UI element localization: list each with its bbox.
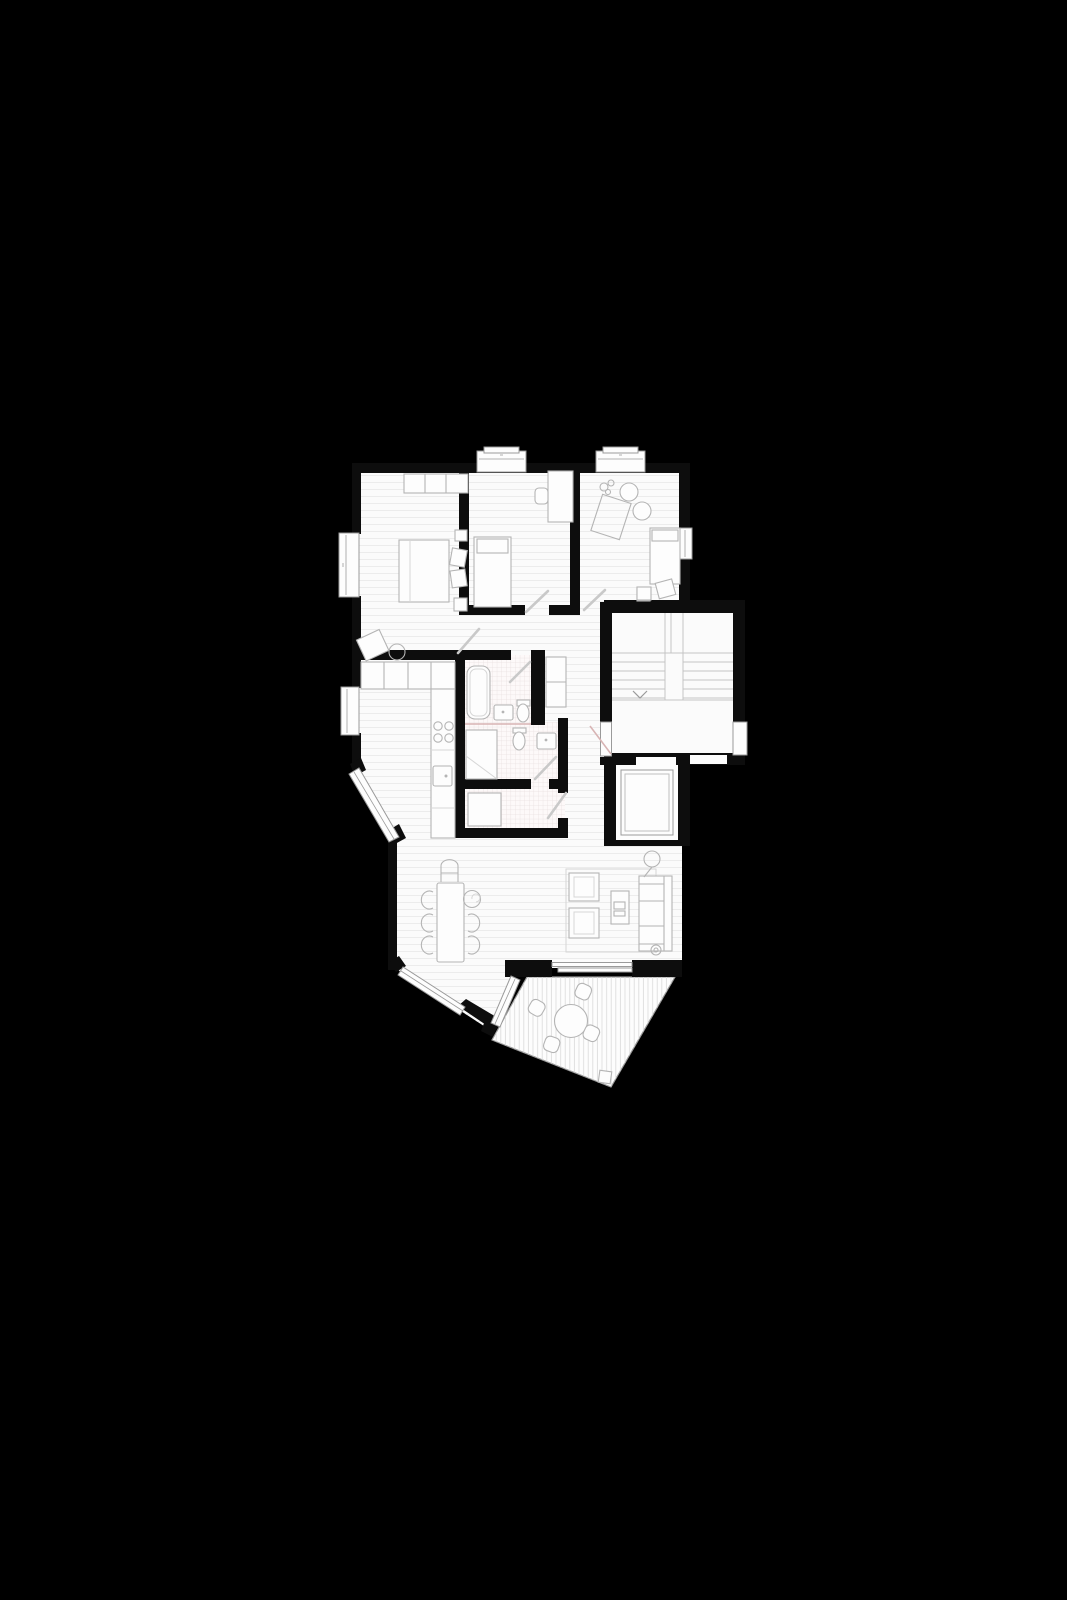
pillow xyxy=(477,539,508,553)
round-pouf xyxy=(633,502,651,520)
pillow xyxy=(652,530,678,541)
storage-room xyxy=(468,793,501,826)
double-bed xyxy=(399,540,449,602)
nightstand xyxy=(454,598,467,611)
storage-cabinet xyxy=(468,793,501,826)
wall-left-upper xyxy=(352,463,361,534)
counter xyxy=(431,689,455,838)
desk xyxy=(548,471,573,522)
wall-stair-left xyxy=(600,602,612,723)
pillow xyxy=(450,548,468,567)
terrace-corner-fixture xyxy=(598,1070,612,1084)
window-bedroom3-right xyxy=(679,528,692,559)
wall-living-bottom-a xyxy=(505,960,552,977)
wall-living-bottom-b xyxy=(632,960,682,977)
neighbour-door-tab xyxy=(733,722,747,755)
entrance-door-leaf xyxy=(601,722,612,756)
bay-window-bedroom2 xyxy=(477,447,526,472)
window-bedroom1-left xyxy=(339,533,359,597)
elevator xyxy=(616,765,678,840)
coffee-table xyxy=(611,891,629,924)
wall-kitchen-right xyxy=(455,650,465,838)
wardrobe xyxy=(404,474,468,493)
elevator-opening xyxy=(636,757,676,766)
terrace-table xyxy=(555,1005,588,1038)
round-pouf xyxy=(620,483,638,501)
shower xyxy=(466,730,497,779)
bedroom3-lower-objects xyxy=(637,587,651,600)
wall-bath2-bottom xyxy=(455,779,531,789)
floor-plan-canvas xyxy=(0,0,1067,1600)
wall-bath2-right xyxy=(558,718,568,786)
toilet xyxy=(513,728,526,750)
sofa xyxy=(639,876,672,951)
nightstand xyxy=(455,530,467,541)
desk-chair xyxy=(535,488,548,504)
dining-table xyxy=(437,883,464,962)
terrace xyxy=(492,977,675,1087)
floor-plan xyxy=(0,0,1067,1600)
wall-stair-top xyxy=(604,600,745,613)
wall-living-left xyxy=(388,833,397,970)
wall-right-upper xyxy=(679,463,690,528)
bay-window-bedroom3 xyxy=(596,447,645,472)
window-kitchen-left xyxy=(341,687,359,735)
wall-storage-bottom xyxy=(455,828,568,838)
armchair xyxy=(569,873,599,901)
pillow xyxy=(450,569,467,588)
wall-storage-right-a xyxy=(558,779,568,793)
kitchen-sink xyxy=(433,766,452,786)
hallway xyxy=(546,657,566,707)
landing-opening-right xyxy=(690,755,727,764)
stairwell-floor xyxy=(610,606,740,758)
armchair xyxy=(569,908,599,938)
toilet xyxy=(517,700,530,722)
wall-bath1-top xyxy=(465,650,511,660)
wall-bath1-right xyxy=(531,650,545,725)
